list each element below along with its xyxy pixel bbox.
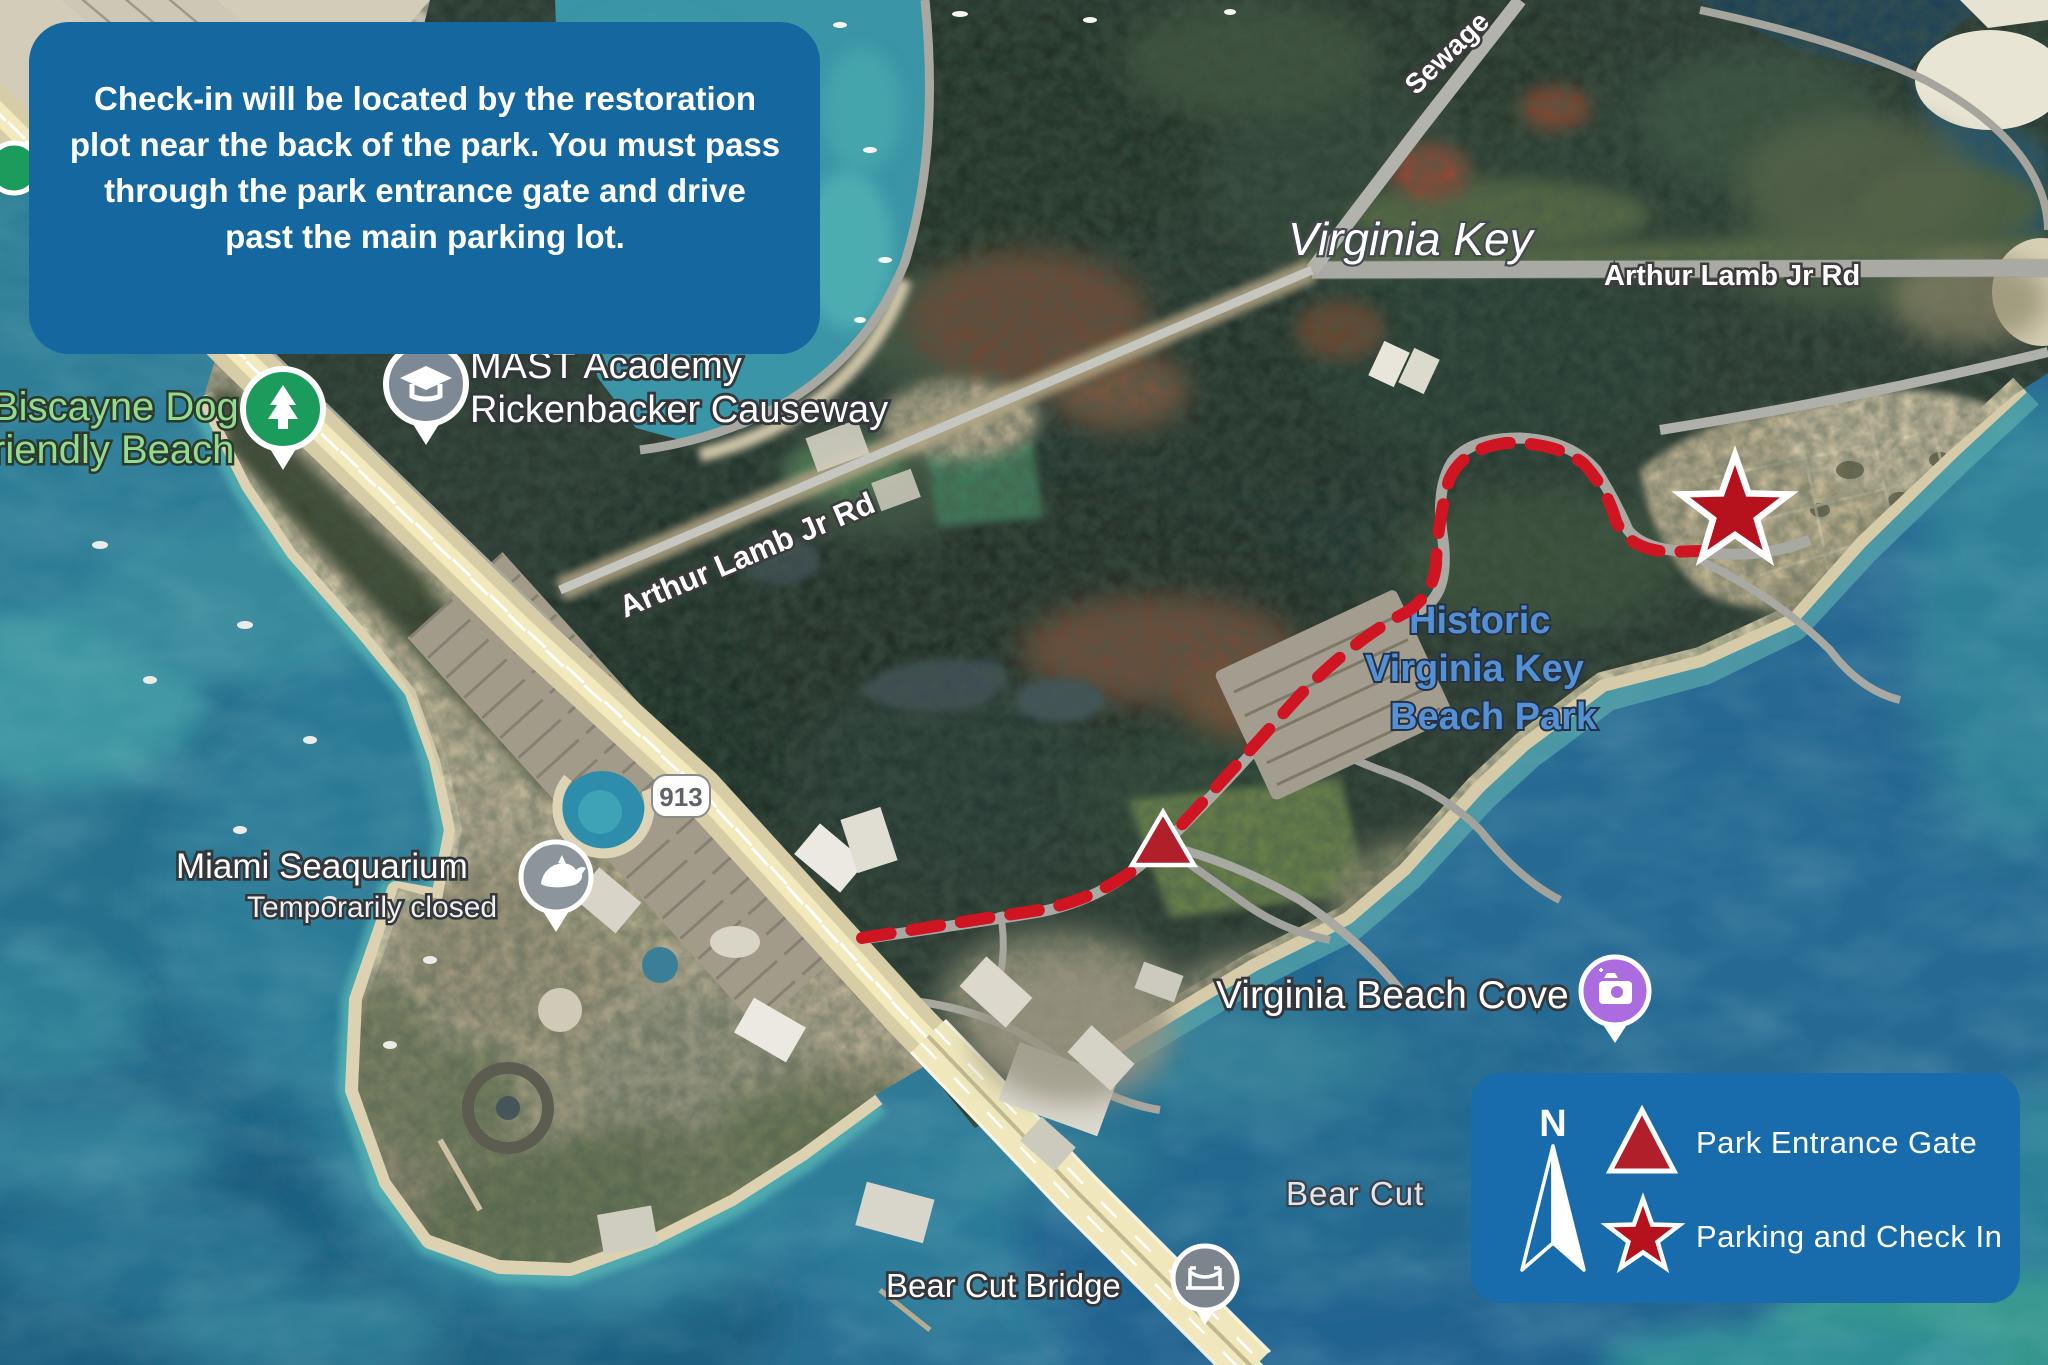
svg-text:Virginia Key: Virginia Key — [1288, 213, 1536, 265]
svg-text:N: N — [1539, 1103, 1566, 1145]
svg-text:Bear Cut: Bear Cut — [1286, 1175, 1424, 1212]
svg-text:913: 913 — [659, 782, 702, 812]
svg-text:Beach Park: Beach Park — [1390, 696, 1598, 738]
svg-text:Check-in will be located by th: Check-in will be located by the restorat… — [94, 80, 756, 117]
svg-text:riendly Beach: riendly Beach — [0, 428, 234, 472]
svg-text:Historic: Historic — [1409, 600, 1550, 642]
svg-text:Temporarily closed: Temporarily closed — [247, 891, 497, 924]
svg-text:Bear Cut Bridge: Bear Cut Bridge — [886, 1267, 1121, 1304]
svg-text:Virginia Key: Virginia Key — [1365, 648, 1584, 690]
svg-text:Rickenbacker Causeway: Rickenbacker Causeway — [470, 389, 888, 431]
svg-text:Virginia Beach Cove: Virginia Beach Cove — [1216, 974, 1569, 1017]
svg-text:Park Entrance Gate: Park Entrance Gate — [1696, 1125, 1977, 1160]
svg-text:Arthur Lamb Jr Rd: Arthur Lamb Jr Rd — [1604, 260, 1860, 292]
svg-text:Parking and Check In: Parking and Check In — [1696, 1219, 2002, 1254]
svg-text:Biscayne Dog: Biscayne Dog — [0, 385, 239, 429]
svg-text:Miami Seaquarium: Miami Seaquarium — [176, 847, 468, 886]
svg-text:plot near the back of the park: plot near the back of the park. You must… — [70, 126, 780, 163]
svg-text:past the main parking lot.: past the main parking lot. — [225, 218, 625, 255]
svg-text:through the park entrance gate: through the park entrance gate and drive — [104, 172, 746, 209]
